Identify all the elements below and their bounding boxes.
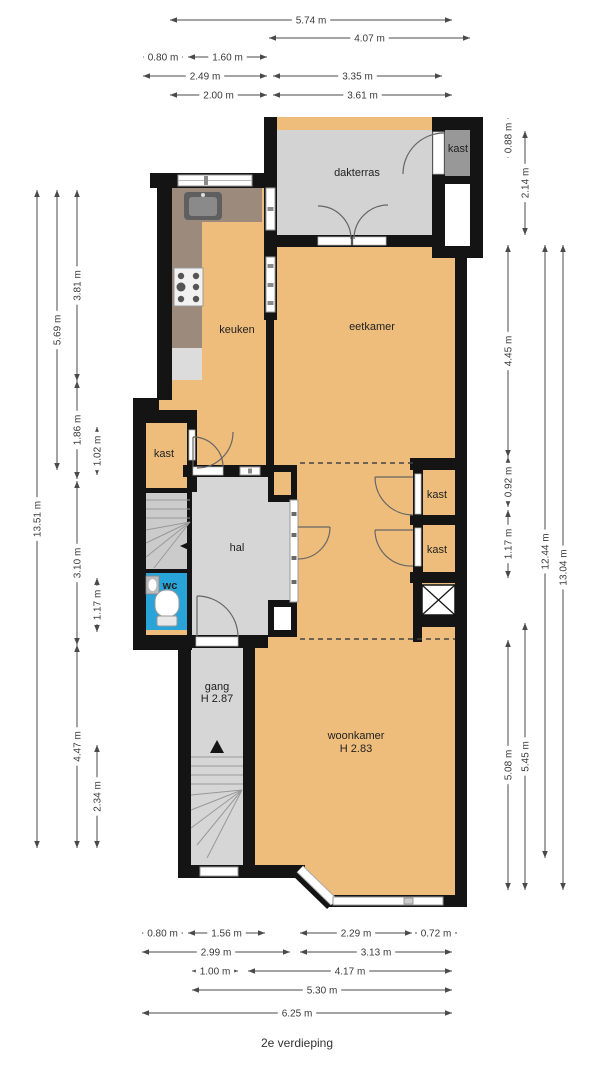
dimension-vertical: 3.81 m xyxy=(71,190,84,381)
dimension-label: 1.60 m xyxy=(212,53,243,64)
dimension-horizontal: 1.00 m xyxy=(192,965,238,978)
dimension-label-group: 2.34 m xyxy=(91,777,104,815)
dimension-label: 2.34 m xyxy=(93,781,104,812)
dimension-arrow xyxy=(170,92,177,98)
dimension-arrow xyxy=(54,190,60,197)
dimension-label: 3.81 m xyxy=(73,270,84,301)
floor-plan-page: dakterraskastkeukeneetkamerkasthalwckast… xyxy=(0,0,600,1066)
dimension-label: 5.45 m xyxy=(521,741,532,772)
dimension-vertical: 1.17 m xyxy=(91,578,104,632)
dimension-arrow xyxy=(273,73,280,79)
dimension-arrow xyxy=(463,35,470,41)
dimension-arrow xyxy=(445,949,452,955)
dimension-vertical: 1.17 m xyxy=(502,510,515,578)
room-label: kast xyxy=(427,489,447,501)
dimension-horizontal: 2.00 m xyxy=(170,89,267,102)
dimension-arrow xyxy=(94,841,100,848)
dimension-arrow xyxy=(505,510,511,517)
dimension-arrow xyxy=(248,968,255,974)
dimension-arrow xyxy=(445,1010,452,1016)
dimension-vertical: 2.14 m xyxy=(519,131,532,235)
dimension-label-group: 5.69 m xyxy=(51,311,64,349)
sink-icon xyxy=(184,192,222,220)
dimension-horizontal: 1.56 m xyxy=(188,927,265,940)
dimension-label: 5.69 m xyxy=(53,315,64,346)
dimension-horizontal: 3.61 m xyxy=(273,89,452,102)
dimension-arrow xyxy=(74,638,80,645)
dimension-arrow xyxy=(94,745,100,752)
dimension-arrow xyxy=(505,571,511,578)
dimension-arrow xyxy=(300,930,307,936)
stove-icon xyxy=(174,268,203,306)
dimension-arrow xyxy=(542,245,548,252)
elevator-icon xyxy=(422,585,455,615)
dimension-arrow xyxy=(445,92,452,98)
dimension-horizontal: 5.30 m xyxy=(192,984,452,997)
room-label: gang xyxy=(205,681,229,693)
dimension-label: 1.86 m xyxy=(73,415,84,446)
dimension-arrow xyxy=(560,245,566,252)
dimension-label: 3.61 m xyxy=(347,91,378,102)
dimension-arrow xyxy=(34,841,40,848)
dimension-arrow xyxy=(74,381,80,388)
hal-glass-partition xyxy=(290,500,298,602)
dimension-horizontal: 6.25 m xyxy=(142,1007,452,1020)
dimension-arrow xyxy=(435,73,442,79)
dimension-label-group: 12.44 m xyxy=(539,530,552,574)
dimension-horizontal: 2.99 m xyxy=(142,946,290,959)
dimension-arrow xyxy=(445,17,452,23)
dimension-arrow xyxy=(142,949,149,955)
room-label: hal xyxy=(230,542,245,554)
dimension-horizontal: 4.17 m xyxy=(248,965,452,978)
dimension-arrow xyxy=(192,987,199,993)
dimension-arrow xyxy=(74,374,80,381)
dimension-label: 1.56 m xyxy=(211,929,242,940)
dimension-vertical: 5.08 m xyxy=(502,640,515,890)
dimension-arrow xyxy=(505,883,511,890)
dimension-horizontal: 4.07 m xyxy=(269,32,470,45)
dimension-horizontal: 0.80 m xyxy=(142,927,183,940)
room-label: eetkamer xyxy=(349,321,395,333)
dimension-label: 13.04 m xyxy=(559,549,570,585)
dimension-arrow xyxy=(522,131,528,138)
dimension-label: 2.99 m xyxy=(201,948,232,959)
dimension-arrow xyxy=(170,17,177,23)
dimension-label: 5.08 m xyxy=(504,750,515,781)
dimension-label: 2.14 m xyxy=(521,168,532,199)
dimension-label-group: 3.10 m xyxy=(71,544,84,582)
dimension-vertical: 2.34 m xyxy=(91,745,104,848)
dimension-label: 1.17 m xyxy=(93,590,104,621)
dimension-horizontal: 2.29 m xyxy=(300,927,412,940)
keuken-dakterras-glass xyxy=(266,188,275,230)
dimension-label: 13.51 m xyxy=(33,501,44,537)
dimension-arrow xyxy=(188,930,195,936)
dimension-label: 1.00 m xyxy=(200,967,231,978)
room-dakterras xyxy=(277,130,432,235)
toilet-icon xyxy=(155,590,179,626)
dimension-label: 12.44 m xyxy=(541,533,552,569)
dimension-vertical: 0.88 m xyxy=(502,118,515,158)
dimension-label: 4.17 m xyxy=(335,967,366,978)
void-below-kast xyxy=(445,184,470,246)
dimension-label-group: 1.17 m xyxy=(91,586,104,624)
dimension-arrow xyxy=(273,92,280,98)
room-label: kast xyxy=(154,448,174,460)
room-gang xyxy=(191,643,243,865)
dimension-label-group: 13.04 m xyxy=(557,546,570,590)
room-label: H 2.87 xyxy=(201,693,233,705)
dimension-horizontal: 3.13 m xyxy=(300,946,452,959)
dimension-arrow xyxy=(260,73,267,79)
dimension-label-group: 4.45 m xyxy=(502,332,515,370)
dimension-label: 0.92 m xyxy=(504,467,515,498)
dimension-arrow xyxy=(94,578,100,585)
dimension-arrow xyxy=(542,851,548,858)
pillar-top-inner xyxy=(274,472,291,495)
dimension-vertical: 0.92 m xyxy=(502,457,515,507)
dimension-arrow xyxy=(505,245,511,252)
dimension-label: 3.10 m xyxy=(73,548,84,579)
dimension-arrow xyxy=(505,640,511,647)
room-label: keuken xyxy=(219,324,254,336)
room-label: H 2.83 xyxy=(340,743,372,755)
dimension-label-group: 1.02 m xyxy=(91,432,104,470)
dimension-horizontal: 5.74 m xyxy=(170,14,452,27)
dimension-horizontal: 3.35 m xyxy=(273,70,442,83)
dimension-label: 1.17 m xyxy=(504,529,515,560)
dimension-label-group: 4.47 m xyxy=(71,727,84,765)
dimension-arrow xyxy=(522,228,528,235)
dimension-arrow xyxy=(258,930,265,936)
dimension-arrow xyxy=(143,73,150,79)
room-label: woonkamer xyxy=(327,730,385,742)
dimension-arrow xyxy=(505,450,511,457)
dimension-vertical: 5.69 m xyxy=(51,190,64,470)
room-label: kast xyxy=(427,544,447,556)
dimension-label: 5.74 m xyxy=(296,16,327,27)
dimension-label-group: 0.92 m xyxy=(502,463,515,501)
dimension-label-group: 1.17 m xyxy=(502,525,515,563)
woonkamer-bottom-window xyxy=(333,897,443,905)
room-label: dakterras xyxy=(334,167,380,179)
dimension-vertical: 1.86 m xyxy=(71,381,84,479)
dimension-label: 3.35 m xyxy=(342,72,373,83)
dimension-arrow xyxy=(283,949,290,955)
dimension-arrow xyxy=(269,35,276,41)
dimension-arrow xyxy=(94,625,100,632)
dimension-arrow xyxy=(260,54,267,60)
dimension-label: 3.13 m xyxy=(361,948,392,959)
pillar-bottom-inner xyxy=(274,607,291,630)
floor-plan-svg: dakterraskastkeukeneetkamerkasthalwckast… xyxy=(0,0,600,1066)
dimension-arrow xyxy=(522,883,528,890)
dimension-vertical: 13.04 m xyxy=(557,245,570,890)
dimension-label-group: 2.14 m xyxy=(519,164,532,202)
keuken-eetkamer-glass xyxy=(266,257,275,312)
dimension-arrow xyxy=(560,883,566,890)
dimension-label: 0.72 m xyxy=(421,929,452,940)
dimension-arrow xyxy=(300,949,307,955)
room-label: wc xyxy=(162,580,178,592)
dimension-arrow xyxy=(34,190,40,197)
dimension-arrow xyxy=(142,1010,149,1016)
dimension-label: 6.25 m xyxy=(282,1009,313,1020)
dimension-label: 5.30 m xyxy=(307,986,338,997)
dimension-vertical: 5.45 m xyxy=(519,623,532,890)
room-label: kast xyxy=(448,143,468,155)
dimension-label: 1.02 m xyxy=(93,436,104,467)
dimension-arrow xyxy=(54,463,60,470)
dimension-label: 0.80 m xyxy=(148,53,179,64)
stairwell-window xyxy=(200,867,238,876)
dimension-arrow xyxy=(74,190,80,197)
dimension-label: 4.45 m xyxy=(504,336,515,367)
dimension-label-group: 5.08 m xyxy=(502,746,515,784)
dimension-label-group: 13.51 m xyxy=(31,497,44,541)
dimension-arrow xyxy=(74,472,80,479)
dimension-arrow xyxy=(74,841,80,848)
dimension-vertical: 3.10 m xyxy=(71,481,84,645)
kitchen-counter-end xyxy=(172,348,202,380)
dimension-vertical: 4.47 m xyxy=(71,645,84,848)
dimension-vertical: 4.45 m xyxy=(502,245,515,457)
dimension-label-group: 0.88 m xyxy=(502,119,515,157)
dimension-label-group: 1.86 m xyxy=(71,411,84,449)
dimension-label: 0.88 m xyxy=(504,123,515,154)
dimension-label: 0.80 m xyxy=(147,929,178,940)
dimension-label: 4.07 m xyxy=(354,34,385,45)
dimension-horizontal: 0.80 m xyxy=(143,51,183,64)
kitchen-window xyxy=(178,175,252,186)
dimension-horizontal: 1.60 m xyxy=(188,51,267,64)
dimension-arrow xyxy=(260,92,267,98)
dimension-arrow xyxy=(445,987,452,993)
dimension-horizontal: 2.49 m xyxy=(143,70,267,83)
dimension-label: 2.49 m xyxy=(190,72,221,83)
dimension-vertical: 13.51 m xyxy=(31,190,44,848)
dimension-arrow xyxy=(74,481,80,488)
dimension-vertical: 12.44 m xyxy=(539,245,552,858)
page-title: 2e verdieping xyxy=(261,1036,333,1050)
dimension-arrow xyxy=(188,54,195,60)
hal-top-glass xyxy=(240,467,260,475)
dimension-vertical: 1.02 m xyxy=(91,427,104,475)
dimension-label: 4.47 m xyxy=(73,731,84,762)
dimension-horizontal: 0.72 m xyxy=(415,927,457,940)
dimension-label-group: 5.45 m xyxy=(519,737,532,775)
dimension-label: 2.00 m xyxy=(203,91,234,102)
dimension-label-group: 3.81 m xyxy=(71,266,84,304)
dimension-arrow xyxy=(405,930,412,936)
dimension-arrow xyxy=(445,968,452,974)
dimension-arrow xyxy=(74,645,80,652)
dimension-label: 2.29 m xyxy=(341,929,372,940)
dimension-arrow xyxy=(522,623,528,630)
